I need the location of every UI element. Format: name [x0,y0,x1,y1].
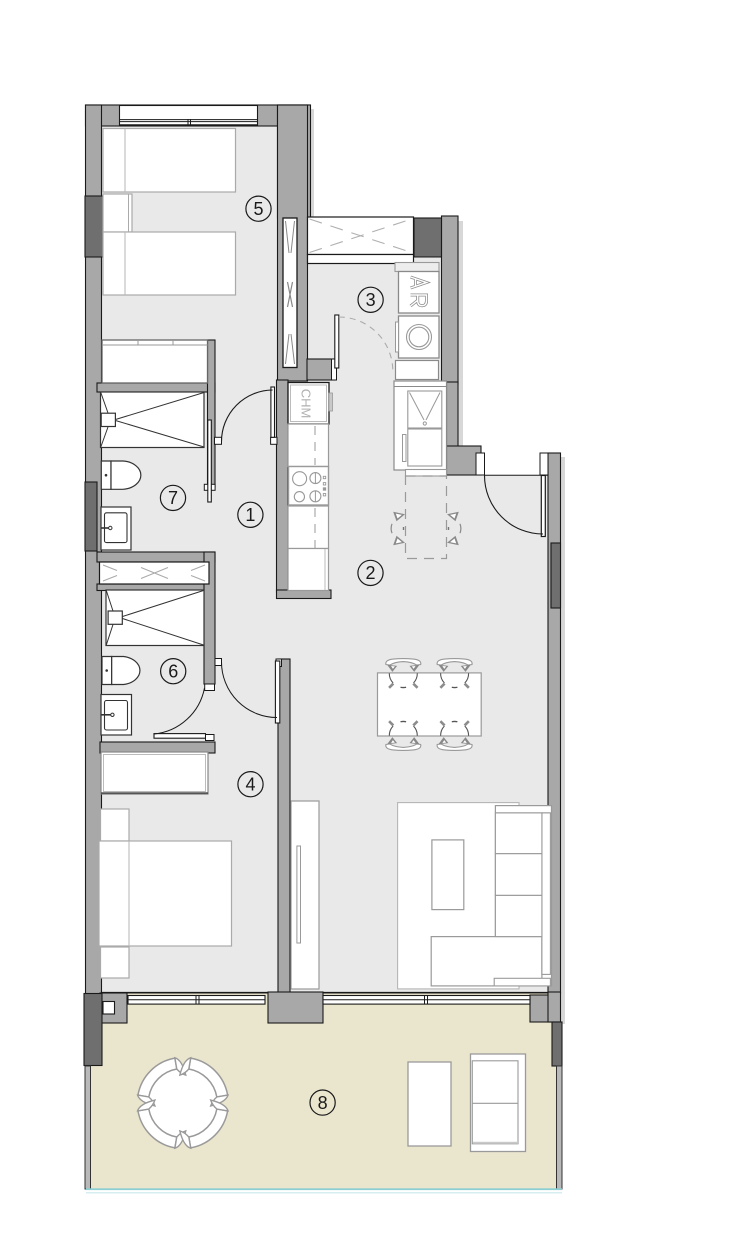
svg-text:6: 6 [168,661,178,681]
svg-text:7: 7 [168,488,178,508]
svg-text:4: 4 [245,774,255,794]
svg-text:3: 3 [366,290,376,310]
svg-text:8: 8 [318,1093,328,1113]
svg-text:1: 1 [245,505,255,525]
svg-text:CHM: CHM [299,389,314,419]
svg-text:5: 5 [253,199,263,219]
svg-text:2: 2 [365,563,375,583]
